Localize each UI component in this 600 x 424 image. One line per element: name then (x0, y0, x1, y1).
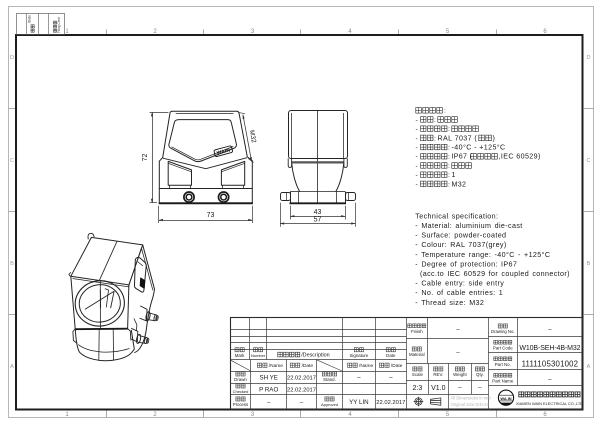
svg-text:C: C (586, 158, 590, 164)
svg-text:–: – (458, 385, 462, 392)
svg-text:Technical specification:: Technical specification: (415, 212, 498, 220)
svg-text:- Temperature range: -40°C - +: - Temperature range: -40°C - +125°C (415, 251, 550, 259)
svg-text:- No. of cable entries: 1: - No. of cable entries: 1 (415, 289, 503, 297)
svg-text:- Surface: powder-coated: - Surface: powder-coated (415, 232, 506, 240)
svg-text::: : (434, 117, 436, 124)
svg-text::: : (448, 126, 450, 133)
svg-text:22.02.2017: 22.02.2017 (287, 388, 316, 394)
svg-text::: : (434, 135, 436, 142)
svg-text::: : (444, 108, 446, 115)
svg-text:–: – (456, 327, 460, 334)
svg-text::: : (448, 163, 450, 170)
svg-text:Checked: Checked (233, 389, 249, 394)
svg-text:-: - (416, 181, 418, 188)
svg-text:A: A (10, 364, 14, 370)
svg-text:-: - (416, 145, 418, 152)
svg-text:Qty.: Qty. (476, 372, 484, 377)
svg-text:73: 73 (207, 212, 215, 219)
svg-text:,IEC 60529): ,IEC 60529) (499, 153, 541, 161)
svg-text:–: – (548, 376, 552, 383)
svg-text:Drawn: Drawn (234, 377, 247, 382)
svg-text:Date: Date (386, 353, 396, 358)
svg-text:M32: M32 (452, 180, 467, 188)
svg-text:D: D (10, 55, 14, 61)
svg-text:Material: Material (409, 352, 425, 357)
svg-text:(acc.to IEC 60529 for coupled: (acc.to IEC 60529 for coupled connector) (420, 270, 570, 278)
svg-text:Original Size DIN A4: Original Size DIN A4 (451, 402, 490, 407)
svg-text:/Description: /Description (301, 352, 329, 358)
svg-text:Part Code: Part Code (493, 346, 513, 351)
svg-text:REV.: REV. (433, 372, 443, 377)
svg-text:A: A (587, 364, 591, 370)
svg-text:- Material: aluminium die-cast: - Material: aluminium die-cast (415, 222, 522, 230)
svg-text:): ) (493, 134, 495, 142)
svg-text:22.02.2017: 22.02.2017 (287, 376, 316, 382)
svg-text::: : (448, 154, 450, 161)
svg-text:D: D (586, 55, 590, 61)
svg-text:Finish: Finish (411, 329, 423, 334)
svg-text:-: - (416, 126, 418, 133)
svg-text:-: - (416, 135, 418, 142)
svg-text:Part Name: Part Name (492, 379, 514, 384)
svg-text:Stand.: Stand. (323, 377, 336, 382)
svg-text:- Thread size: M32: - Thread size: M32 (415, 299, 484, 307)
svg-text:- Cable entry: side entry: - Cable entry: side entry (415, 280, 504, 288)
svg-text:-: - (416, 117, 418, 124)
svg-text:- Colour: RAL 7037(grey): - Colour: RAL 7037(grey) (415, 241, 506, 249)
svg-text::: : (448, 172, 450, 179)
svg-text:P RAO: P RAO (259, 387, 278, 394)
svg-text:Weight: Weight (453, 372, 467, 377)
svg-text:XIAMEN WAIN ELECTRICAL CO.,LTD: XIAMEN WAIN ELECTRICAL CO.,LTD (516, 401, 583, 406)
svg-text:–: – (548, 327, 552, 334)
svg-text:WA.IN: WA.IN (500, 396, 511, 401)
svg-text::: : (448, 145, 450, 152)
svg-text:SH YE: SH YE (259, 375, 277, 382)
svg-text:/Date: /Date (28, 15, 32, 23)
svg-text:Part No.: Part No. (495, 362, 511, 367)
svg-text:–: – (300, 399, 304, 406)
svg-text::: : (448, 181, 450, 188)
svg-text:–: – (456, 350, 460, 357)
svg-text:57: 57 (314, 217, 322, 224)
svg-text:Signature: Signature (350, 353, 369, 358)
svg-text:–: – (478, 385, 482, 392)
svg-text:C: C (10, 158, 14, 164)
svg-text:Process: Process (233, 402, 248, 407)
svg-text:Mark: Mark (235, 353, 246, 358)
svg-text:/Date: /Date (302, 363, 314, 369)
svg-text:72: 72 (142, 154, 149, 162)
svg-text:/Name: /Name (359, 363, 373, 369)
svg-text:V1.0: V1.0 (431, 385, 446, 392)
svg-text:Number: Number (251, 353, 266, 358)
svg-text:–: – (389, 375, 393, 382)
svg-text:/Date: /Date (391, 363, 403, 369)
svg-text:B: B (10, 261, 14, 267)
svg-text:IP67 (: IP67 ( (452, 153, 473, 161)
svg-text:B: B (587, 261, 591, 267)
svg-text:Scale: Scale (412, 372, 424, 377)
svg-text:Filing Clerk: Filing Clerk (57, 17, 61, 33)
svg-text:- Degree of protection: IP67: - Degree of protection: IP67 (415, 260, 517, 268)
svg-text:1111105301002: 1111105301002 (522, 360, 579, 369)
svg-text:-40°C - +125°C: -40°C - +125°C (452, 144, 506, 152)
svg-text:Drawing No.: Drawing No. (491, 329, 515, 334)
svg-text:Approved: Approved (321, 402, 338, 407)
svg-text:-: - (416, 163, 418, 170)
svg-text:All Dimensions in mm: All Dimensions in mm (451, 396, 492, 401)
svg-text:YY LIN: YY LIN (349, 399, 369, 406)
svg-text:-: - (416, 154, 418, 161)
svg-text:43: 43 (314, 209, 322, 216)
svg-text:22.02.2017: 22.02.2017 (376, 400, 405, 406)
svg-text:–: – (357, 375, 361, 382)
svg-text:–: – (267, 399, 271, 406)
svg-text:/Name: /Name (269, 363, 283, 369)
svg-text:2:3: 2:3 (413, 385, 423, 392)
svg-text:1: 1 (452, 171, 456, 179)
svg-text:-: - (416, 172, 418, 179)
svg-text:W10B-SEH-4B-M32: W10B-SEH-4B-M32 (519, 345, 580, 352)
svg-text:RAL 7037 (: RAL 7037 ( (438, 134, 478, 142)
